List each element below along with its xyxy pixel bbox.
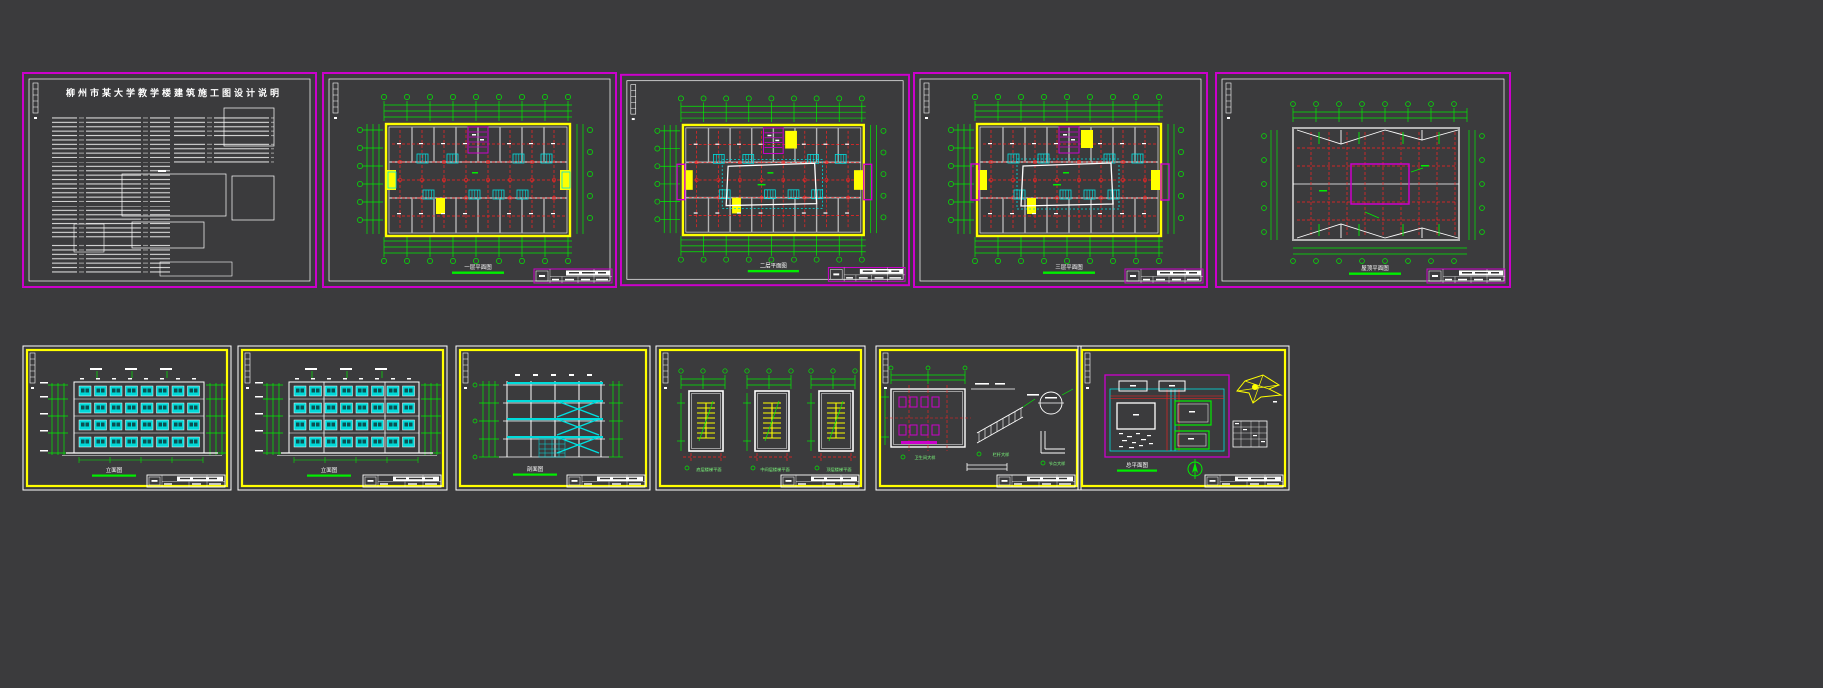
sheet-index-strip [33, 83, 38, 119]
stair-plan-detail-2: 中间层楼梯平面 [743, 369, 793, 473]
elevation-drawing [40, 368, 226, 463]
sheet-main-title: 柳州市某大学教学楼建筑施工图设计说明 [66, 87, 282, 99]
site-landscape-hatch [1119, 433, 1153, 448]
washroom-plan-detail: 卫生间大样 [881, 366, 971, 461]
floor-plan-drawing [357, 94, 592, 263]
svg-text:顶层楼梯平面: 顶层楼梯平面 [826, 466, 851, 473]
roof-label-row [515, 374, 592, 376]
sheet-section[interactable]: 剖面图 [455, 345, 651, 491]
sheet-index-strip [1085, 353, 1090, 389]
glazed-entry-grid [539, 439, 565, 457]
svg-text:一层平面图: 一层平面图 [464, 263, 492, 271]
railing-detail: 栏杆大样 [971, 383, 1039, 458]
drawing-caption: 总平面图 [1117, 461, 1157, 472]
drawing-caption: 立面图 [92, 466, 136, 477]
economic-indicator-table [1233, 421, 1267, 447]
drawing-caption: 屋顶平面图 [1349, 264, 1401, 275]
sheet-index-strip [463, 353, 468, 389]
svg-text:二层平面图: 二层平面图 [760, 261, 787, 269]
sheet-index-strip [1226, 83, 1231, 119]
svg-text:立面图: 立面图 [106, 466, 123, 474]
svg-text:屋顶平面图: 屋顶平面图 [1361, 264, 1389, 272]
elevation-drawing [255, 368, 441, 463]
sheet-plan-2f[interactable]: 二层平面图 [620, 72, 910, 288]
drawing-caption: 一层平面图 [452, 263, 504, 274]
svg-text:总平面图: 总平面图 [1126, 461, 1149, 469]
wind-rose-icon [1237, 375, 1281, 403]
skylight-opening [1319, 164, 1429, 218]
drawing-caption: 剖面图 [513, 465, 557, 476]
sheet-index-strip [631, 85, 636, 120]
sheet-index-strip [924, 83, 929, 119]
stair-flights [557, 401, 599, 453]
sheet-design-notes[interactable]: 柳州市某大学教学楼建筑施工图设计说明 [22, 72, 317, 288]
notes-text-columns [52, 116, 274, 274]
sheet-detail-drawings[interactable]: 卫生间大样 栏杆大样 [875, 345, 1082, 491]
sheet-index-strip [245, 353, 250, 389]
stair-plan-detail-1: 底层楼梯平面 [677, 369, 727, 473]
stair-plan-detail-3: 顶层楼梯平面 [807, 369, 857, 473]
sheet-plan-1f[interactable]: 一层平面图 [322, 72, 617, 288]
sheet-index-strip [333, 83, 338, 119]
svg-text:底层楼梯平面: 底层楼梯平面 [696, 466, 721, 473]
sheet-elevation-rear[interactable]: 立面图 [237, 345, 448, 491]
drawing-caption: 三层平面图 [1043, 263, 1095, 274]
sheet-frame [23, 346, 231, 490]
sheet-index-strip [30, 353, 35, 389]
sheet-frame [1216, 73, 1510, 287]
sheet-plan-3f[interactable]: 三层平面图 [913, 72, 1208, 288]
atrium-void [971, 159, 1169, 209]
svg-text:卫生间大样: 卫生间大样 [915, 454, 936, 461]
sheet-elevation-front[interactable]: 立面图 [22, 345, 232, 491]
sheet-stair-details[interactable]: 底层楼梯平面 中间层楼梯平面 顶层楼梯平面 [655, 345, 866, 491]
drawing-caption: 二层平面图 [748, 261, 799, 272]
sheet-index-strip [663, 353, 668, 389]
atrium-void [677, 159, 872, 208]
drawing-caption: 立面图 [307, 466, 351, 477]
sheet-site-plan[interactable]: 总平面图 [1077, 345, 1290, 491]
site-buildings [1117, 381, 1211, 449]
roof-outline [1293, 128, 1459, 240]
svg-text:三层平面图: 三层平面图 [1055, 263, 1083, 271]
floor-plan-drawing [948, 94, 1183, 263]
svg-text:栏杆大样: 栏杆大样 [993, 451, 1010, 458]
stair-highlight [785, 131, 797, 149]
sheet-frame [238, 346, 447, 490]
svg-text:剖面图: 剖面图 [527, 465, 544, 473]
floor-plan-drawing [655, 96, 886, 262]
svg-text:中间层楼梯平面: 中间层楼梯平面 [760, 466, 789, 473]
svg-text:立面图: 立面图 [321, 466, 338, 474]
svg-text:节点大样: 节点大样 [1049, 460, 1066, 467]
sheet-roof-plan[interactable]: 屋顶平面图 [1215, 72, 1511, 288]
cad-model-space: 柳州市某大学教学楼建筑施工图设计说明 [0, 0, 1823, 688]
north-arrow-icon [1188, 459, 1202, 479]
stair-highlight [1081, 130, 1093, 148]
sheet-index-strip [883, 353, 888, 389]
section-structure [499, 381, 609, 457]
